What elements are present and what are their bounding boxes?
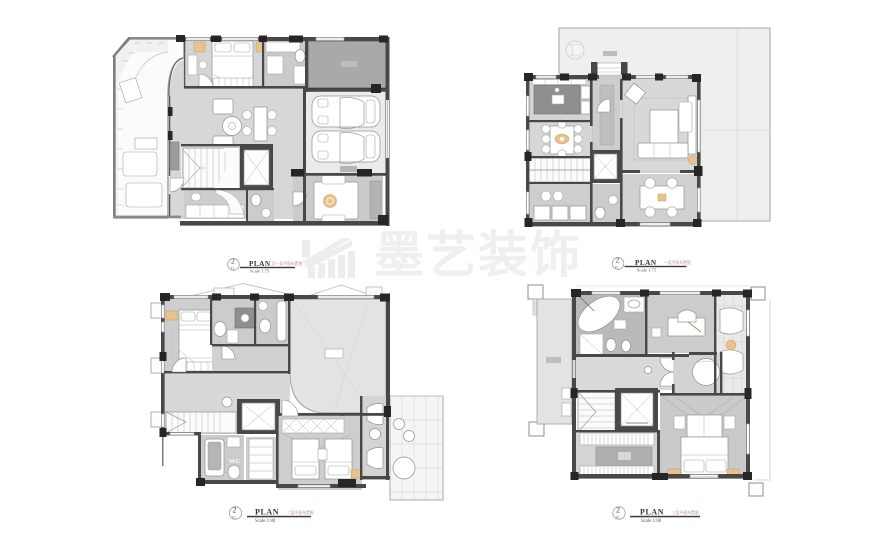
svg-text:二层平面布置图: 二层平面布置图: [287, 510, 314, 515]
svg-text:F1: F1: [615, 266, 619, 270]
svg-text:Scale 1:80: Scale 1:80: [641, 519, 662, 524]
svg-text:三层平面布置图: 三层平面布置图: [672, 510, 699, 515]
svg-text:墨艺装饰: 墨艺装饰: [374, 227, 582, 283]
svg-text:2: 2: [233, 506, 237, 515]
svg-text:PLAN: PLAN: [255, 508, 279, 517]
svg-text:PLAN: PLAN: [249, 260, 271, 268]
svg-text:WC: WC: [229, 458, 241, 465]
svg-text:PLAN: PLAN: [640, 508, 664, 517]
svg-text:2: 2: [616, 506, 620, 515]
svg-text:F1: F1: [231, 267, 235, 271]
svg-text:一层平面布置图: 一层平面布置图: [664, 260, 691, 265]
svg-text:PLAN: PLAN: [635, 259, 657, 267]
svg-text:2: 2: [616, 256, 620, 265]
svg-text:F3: F3: [616, 516, 620, 520]
svg-text:F2: F2: [232, 516, 236, 520]
svg-text:Scale 1:75: Scale 1:75: [637, 268, 657, 273]
svg-text:Scale 1:80: Scale 1:80: [255, 519, 276, 524]
svg-text:Scale 1:75: Scale 1:75: [250, 269, 270, 274]
svg-text:负一层平面布置图: 负一层平面布置图: [272, 261, 303, 266]
svg-text:2: 2: [231, 257, 235, 266]
